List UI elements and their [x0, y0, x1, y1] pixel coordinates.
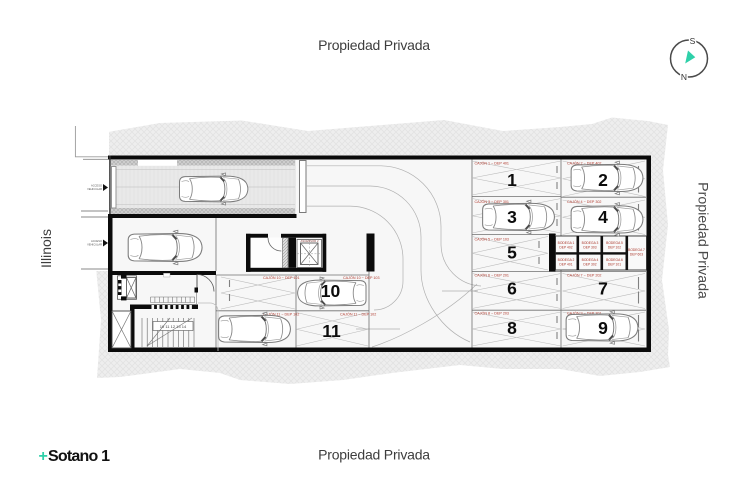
svg-text:Illinois: Illinois [38, 229, 54, 268]
svg-text:DEP 102: DEP 102 [608, 246, 621, 250]
svg-text:BODEGA 5: BODEGA 5 [606, 241, 623, 245]
svg-text:3: 3 [507, 207, 517, 227]
svg-text:DEP 302: DEP 302 [583, 263, 596, 267]
svg-text:8: 8 [507, 318, 517, 338]
svg-text:6: 6 [507, 279, 517, 299]
svg-text:CAJÓN 10 ~ DEP 101: CAJÓN 10 ~ DEP 101 [263, 275, 300, 280]
svg-text:BODEGA 1: BODEGA 1 [558, 241, 575, 245]
svg-text:CAJÓN 8 ~ DEP 203: CAJÓN 8 ~ DEP 203 [475, 311, 509, 316]
svg-text:10 11 12 13 14: 10 11 12 13 14 [160, 324, 187, 329]
svg-text:VEHICULAR: VEHICULAR [87, 187, 102, 191]
svg-text:CAJÓN 10 ~ DEP 103: CAJÓN 10 ~ DEP 103 [343, 275, 380, 280]
svg-text:S: S [690, 36, 696, 46]
svg-text:7: 7 [598, 279, 608, 299]
svg-text:2: 2 [598, 170, 608, 190]
svg-text:DEP 401: DEP 401 [559, 263, 572, 267]
svg-text:CAJÓN 5 ~ DEP 103: CAJÓN 5 ~ DEP 103 [475, 237, 509, 242]
svg-text:CAJÓN 1 ~ DEP 401: CAJÓN 1 ~ DEP 401 [475, 161, 509, 166]
svg-text:ASCENSOR 2: ASCENSOR 2 [300, 239, 318, 243]
svg-text:5: 5 [507, 243, 517, 263]
svg-text:BODEGA 6: BODEGA 6 [606, 258, 623, 262]
svg-text:DEP 603: DEP 603 [630, 253, 643, 257]
svg-text:Sotano 1: Sotano 1 [48, 448, 110, 465]
svg-text:Propiedad Privada: Propiedad Privada [695, 182, 711, 299]
svg-text:+: + [39, 448, 48, 465]
svg-text:CAJÓN 7 ~ DEP 202: CAJÓN 7 ~ DEP 202 [567, 273, 601, 278]
svg-text:CAJÓN 4 ~ DEP 302: CAJÓN 4 ~ DEP 302 [567, 199, 601, 204]
svg-text:VEHICULAR: VEHICULAR [87, 242, 102, 246]
svg-text:Propiedad Privada: Propiedad Privada [318, 447, 430, 463]
svg-text:DEP 402: DEP 402 [559, 246, 572, 250]
svg-text:1: 1 [507, 170, 517, 190]
svg-text:11: 11 [322, 321, 341, 341]
svg-text:BODEGA 4: BODEGA 4 [582, 258, 599, 262]
svg-text:Propiedad Privada: Propiedad Privada [318, 37, 430, 53]
svg-text:BODEGA 7: BODEGA 7 [628, 248, 645, 252]
svg-text:4: 4 [598, 207, 608, 227]
svg-text:BODEGA 3: BODEGA 3 [582, 241, 599, 245]
svg-text:10: 10 [321, 281, 341, 301]
svg-text:DEP 101: DEP 101 [608, 263, 621, 267]
svg-text:BODEGA 2: BODEGA 2 [558, 258, 575, 262]
svg-text:CAJÓN 6 ~ DEP 201: CAJÓN 6 ~ DEP 201 [475, 273, 509, 278]
svg-text:DEP 303: DEP 303 [583, 246, 596, 250]
svg-text:N: N [681, 72, 687, 82]
svg-text:CAJÓN 11 ~ DEP 102: CAJÓN 11 ~ DEP 102 [340, 312, 376, 317]
svg-text:9: 9 [598, 318, 608, 338]
